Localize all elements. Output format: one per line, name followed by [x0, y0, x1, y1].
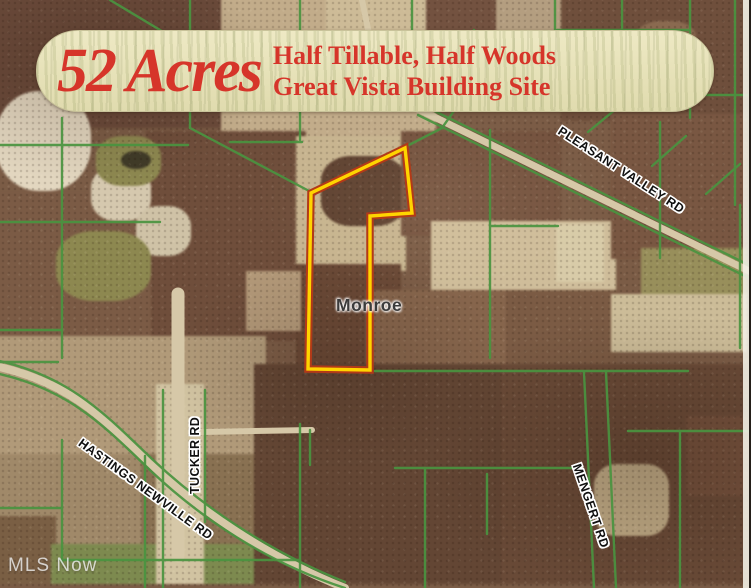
feature-line-1: Half Tillable, Half Woods	[273, 40, 556, 71]
acreage-headline: 52 Acres	[37, 40, 261, 102]
property-outline-inner	[308, 148, 412, 370]
property-outline	[308, 148, 412, 370]
feature-lines: Half Tillable, Half Woods Great Vista Bu…	[273, 40, 556, 102]
listing-banner: 52 Acres Half Tillable, Half Woods Great…	[36, 30, 714, 112]
feature-line-2: Great Vista Building Site	[273, 71, 556, 102]
listing-flyer: Monroe PLEASANT VALLEY RD HASTINGS NEWVI…	[0, 0, 751, 588]
property-outline-outer	[308, 148, 412, 370]
road-label-tucker: TUCKER RD	[188, 417, 202, 494]
township-label: Monroe	[336, 295, 402, 316]
mls-watermark: MLS Now	[8, 555, 97, 577]
